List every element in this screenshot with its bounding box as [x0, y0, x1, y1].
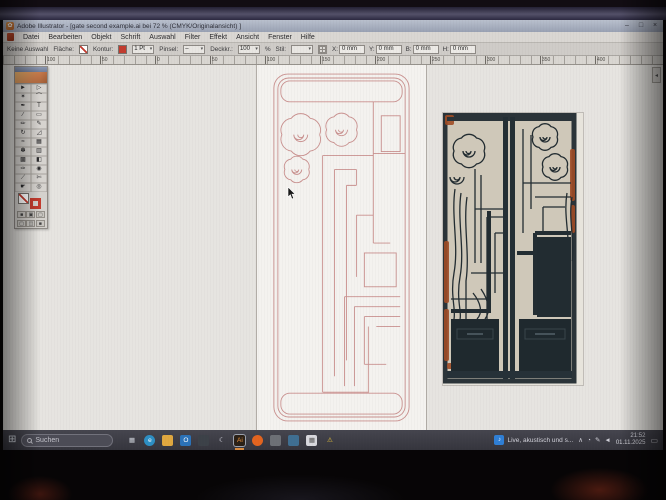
- opacity-unit: %: [265, 46, 271, 53]
- system-tray: ∧◔✎◄: [578, 436, 611, 444]
- opacity-select[interactable]: 100▾: [238, 45, 260, 54]
- width-field: B: 0 mm: [406, 45, 439, 54]
- menu-auswahl[interactable]: Auswahl: [149, 34, 175, 41]
- gradient-mode-button[interactable]: ▣: [26, 211, 35, 218]
- hidden-icons-chevron[interactable]: ∧: [578, 436, 583, 444]
- height-field: H: 0 mm: [443, 45, 476, 54]
- type-tool[interactable]: T: [31, 102, 47, 111]
- outlook-icon[interactable]: O: [180, 435, 191, 446]
- illustrator-icon[interactable]: Ai: [234, 435, 245, 446]
- window-title: Adobe Illustrator - [gate second example…: [17, 23, 619, 30]
- taskbar-apps: ▦eO☾Ai▦⚠: [126, 435, 335, 446]
- gate-drawing[interactable]: [257, 65, 426, 430]
- clock-date: 01.11.2025: [616, 440, 646, 447]
- calendar-app-icon[interactable]: [198, 435, 209, 446]
- tray-status-icon[interactable]: ◔: [587, 437, 591, 444]
- volume-icon[interactable]: ◄: [604, 437, 610, 444]
- close-button[interactable]: ×: [650, 22, 660, 30]
- mesh-tool[interactable]: ▩: [15, 156, 31, 165]
- toolbox-palette: ►▷✶⌒✒T∕▭✏✎↻◿≈▦✽▥▩◧✑◉⟋✄☛◎ ■▣▢ ▢◫■: [14, 66, 48, 229]
- standard-screen-button[interactable]: ▢: [17, 220, 26, 227]
- start-button[interactable]: ⊞: [8, 431, 16, 449]
- stroke-swatch[interactable]: [118, 45, 127, 54]
- photo-dark-bottom: [0, 450, 666, 500]
- graph-tool[interactable]: ▥: [31, 147, 47, 156]
- menu-objekt[interactable]: Objekt: [91, 34, 111, 41]
- slice-tool[interactable]: ⟋: [15, 174, 31, 183]
- ruler-tick: 300: [485, 56, 540, 64]
- taskbar-clock[interactable]: 21:52 01.11.2025: [616, 433, 646, 447]
- ruler-tick: 350: [540, 56, 595, 64]
- ruler-tick: 150: [320, 56, 375, 64]
- chevron-down-icon: ▾: [201, 46, 204, 52]
- menu-filter[interactable]: Filter: [185, 34, 201, 41]
- line-segment-tool[interactable]: ∕: [15, 111, 31, 120]
- style-select[interactable]: ▾: [291, 45, 313, 54]
- taskbar: ⊞ Suchen ▦eO☾Ai▦⚠ ♪ Live, akustisch und …: [3, 430, 663, 450]
- x-field: X: 0 mm: [332, 45, 365, 54]
- mouse-cursor: [287, 187, 296, 200]
- chevron-down-icon: ▾: [150, 46, 153, 52]
- ruler-tick: 50: [100, 56, 155, 64]
- geometric-pattern[interactable]: [323, 102, 406, 393]
- pen-tray-icon[interactable]: ✎: [595, 436, 600, 444]
- cloud-motifs[interactable]: [281, 113, 357, 183]
- gate-photo-graphic: [443, 113, 583, 385]
- lasso-tool[interactable]: ⌒: [31, 93, 47, 102]
- zoom-tool[interactable]: ◎: [31, 183, 47, 192]
- screen: ✿ Adobe Illustrator - [gate second examp…: [3, 20, 663, 450]
- horizontal-ruler: 10050050100150200250300350400: [3, 56, 663, 65]
- ruler-tick: 100: [265, 56, 320, 64]
- grid-app-icon[interactable]: ▦: [306, 435, 317, 446]
- search-input[interactable]: Suchen: [21, 434, 113, 447]
- free-transform-tool[interactable]: ▦: [31, 138, 47, 147]
- stroke-label: Kontur:: [93, 46, 113, 53]
- eyedropper-tool[interactable]: ✑: [15, 165, 31, 174]
- rectangle-tool[interactable]: ▭: [31, 111, 47, 120]
- monitor-top-edge-glow: [0, 7, 666, 20]
- gray-app-icon[interactable]: [270, 435, 281, 446]
- paintbrush-tool[interactable]: ✏: [15, 120, 31, 129]
- task-view-icon[interactable]: ▦: [126, 435, 137, 446]
- fullscreen-button[interactable]: ■: [36, 220, 45, 227]
- menubar: DateiBearbeitenObjektSchriftAuswahlFilte…: [3, 32, 663, 43]
- menu-effekt[interactable]: Effekt: [209, 34, 227, 41]
- blend-tool[interactable]: ◉: [31, 165, 47, 174]
- opacity-label: Deckkr.:: [210, 46, 233, 53]
- titlebar: ✿ Adobe Illustrator - [gate second examp…: [3, 20, 663, 32]
- options-bar: Keine Auswahl Fläche: Kontur: 1 Pt▾ Pins…: [3, 43, 663, 56]
- stroke-width-select[interactable]: 1 Pt▾: [132, 45, 154, 54]
- search-icon: [27, 438, 32, 443]
- none-mode-button[interactable]: ▢: [36, 211, 45, 218]
- menu-schrift[interactable]: Schrift: [120, 34, 140, 41]
- reference-point-grid[interactable]: [318, 45, 327, 54]
- ruler-tick: 400: [595, 56, 650, 64]
- toolbox-stroke-swatch[interactable]: [30, 198, 41, 209]
- media-title: Live, akustisch und s...: [507, 437, 573, 444]
- brush-label: Pinsel:: [159, 46, 178, 53]
- canvas[interactable]: ►▷✶⌒✒T∕▭✏✎↻◿≈▦✽▥▩◧✑◉⟋✄☛◎ ■▣▢ ▢◫■: [3, 65, 663, 430]
- moon-app-icon[interactable]: ☾: [216, 435, 227, 446]
- illustrator-app-icon: ✿: [6, 22, 14, 30]
- music-icon: ♪: [494, 435, 504, 445]
- gate-frame[interactable]: [274, 74, 409, 421]
- clock-time: 21:52: [616, 433, 646, 440]
- warp-tool[interactable]: ≈: [15, 138, 31, 147]
- action-center-icon[interactable]: ▭: [650, 436, 658, 445]
- hand-tool[interactable]: ☛: [15, 183, 31, 192]
- selection-tool[interactable]: ►: [15, 84, 31, 93]
- ruler-tick: 200: [375, 56, 430, 64]
- brush-select[interactable]: –▾: [183, 45, 205, 54]
- color-mode-button[interactable]: ■: [17, 211, 26, 218]
- pen-tool[interactable]: ✒: [15, 102, 31, 111]
- maximize-button[interactable]: □: [636, 22, 646, 30]
- ruler-tick: 100: [45, 56, 100, 64]
- toolbox-fill-swatch[interactable]: [18, 193, 29, 204]
- fill-stroke-swatches: [15, 192, 47, 210]
- document-icon: [7, 33, 14, 41]
- y-field: Y: 0 mm: [369, 45, 402, 54]
- rotate-tool[interactable]: ↻: [15, 129, 31, 138]
- magic-wand-tool[interactable]: ✶: [15, 93, 31, 102]
- chevron-down-icon: ▾: [309, 46, 312, 52]
- firefox-icon[interactable]: [252, 435, 263, 446]
- reference-photo-image[interactable]: [443, 113, 583, 385]
- fill-label: Fläche:: [53, 46, 74, 53]
- ruler-tick: 0: [155, 56, 210, 64]
- menu-hilfe[interactable]: Hilfe: [301, 34, 315, 41]
- gradient-tool[interactable]: ◧: [31, 156, 47, 165]
- fullscreen-menu-button[interactable]: ◫: [26, 220, 35, 227]
- pencil-tool[interactable]: ✎: [31, 120, 47, 129]
- scale-tool[interactable]: ◿: [31, 129, 47, 138]
- direct-selection-tool[interactable]: ▷: [31, 84, 47, 93]
- menu-ansicht[interactable]: Ansicht: [236, 34, 259, 41]
- file-explorer-icon[interactable]: [162, 435, 173, 446]
- chevron-down-icon: ▾: [255, 46, 258, 52]
- minimize-button[interactable]: –: [622, 22, 632, 30]
- blue-app-icon[interactable]: [288, 435, 299, 446]
- symbol-sprayer-tool[interactable]: ✽: [15, 147, 31, 156]
- style-label: Stil:: [276, 46, 287, 53]
- warning-tray-icon[interactable]: ⚠: [324, 435, 335, 446]
- menu-datei[interactable]: Datei: [23, 34, 39, 41]
- selection-status: Keine Auswahl: [7, 46, 48, 53]
- scissors-tool[interactable]: ✄: [31, 174, 47, 183]
- toolbox-brand-image: [15, 72, 47, 84]
- media-widget[interactable]: ♪ Live, akustisch und s...: [494, 435, 573, 445]
- edge-icon[interactable]: e: [144, 435, 155, 446]
- menu-fenster[interactable]: Fenster: [268, 34, 292, 41]
- ruler-tick: 250: [430, 56, 485, 64]
- artboard[interactable]: [256, 65, 427, 430]
- fill-swatch[interactable]: [79, 45, 88, 54]
- menu-bearbeiten[interactable]: Bearbeiten: [48, 34, 82, 41]
- monitor-photo: ✿ Adobe Illustrator - [gate second examp…: [0, 0, 666, 500]
- ruler-tick: 50: [210, 56, 265, 64]
- transform-fields: X: 0 mm Y: 0 mm B: 0 mm H: 0 mm: [332, 45, 476, 54]
- docked-panel-tab[interactable]: ◂: [652, 67, 661, 83]
